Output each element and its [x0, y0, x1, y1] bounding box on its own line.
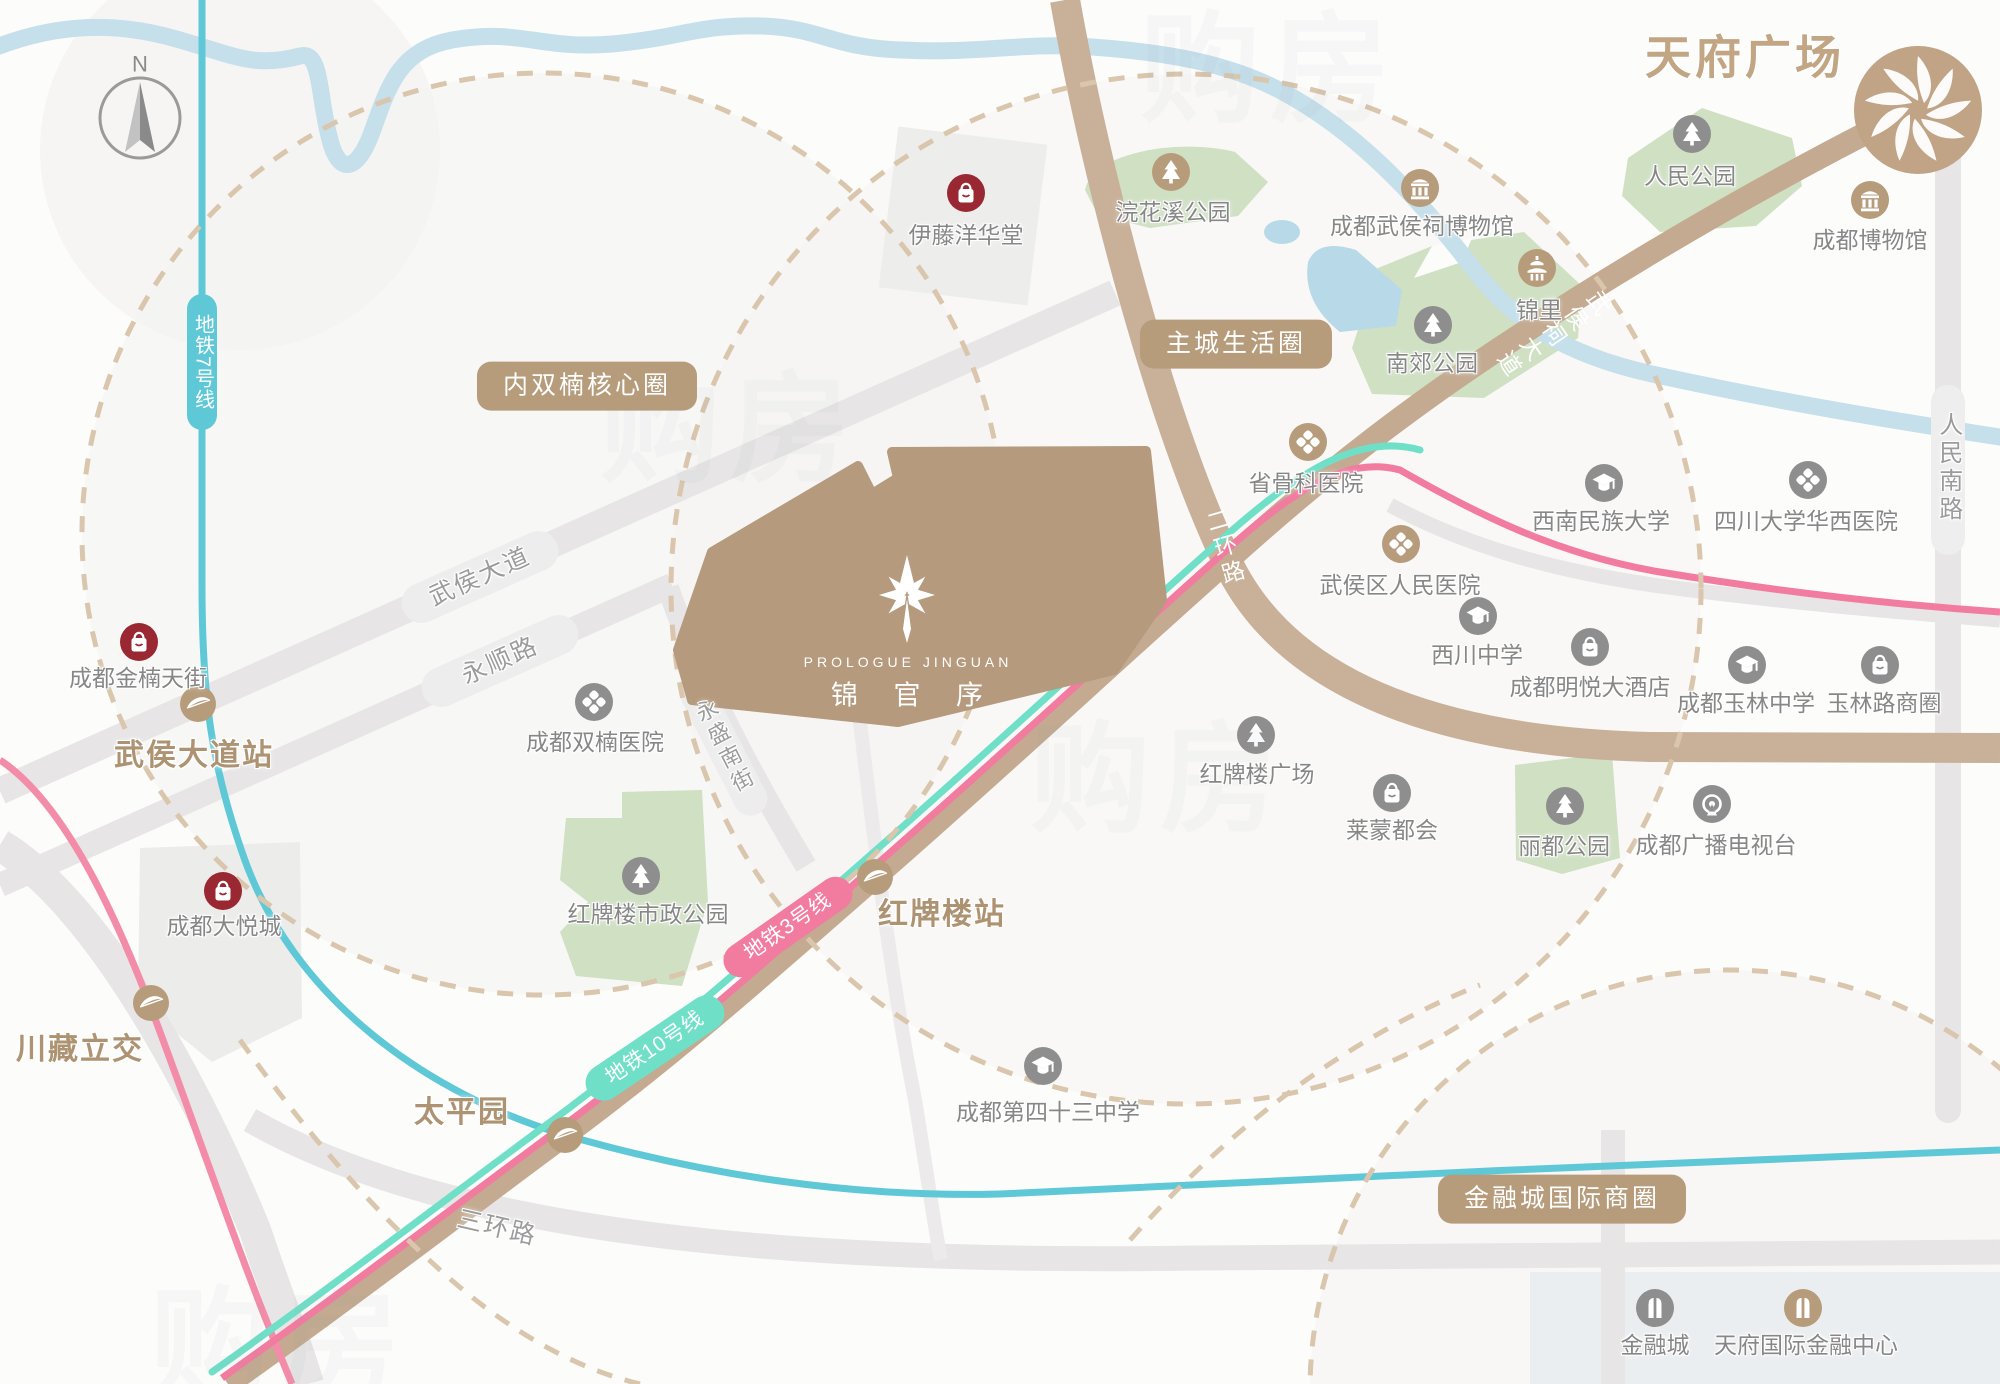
poi-label: 人民公园: [1644, 163, 1736, 189]
school-icon: [1585, 464, 1623, 502]
hospital-icon: [575, 683, 613, 721]
poi-label: 丽都公园: [1518, 833, 1610, 859]
tianfu-square-label: 天府广场: [1645, 32, 1845, 85]
poi-label: 成都武侯祠博物馆: [1330, 213, 1514, 239]
block-financial-city: [1530, 1272, 2000, 1384]
station-icon-hongpailou: [857, 859, 893, 895]
poi-label: 西川中学: [1431, 642, 1523, 668]
tianfu-square-icon: [1854, 46, 1982, 174]
museum-icon: [1401, 169, 1439, 207]
building-icon: [1636, 1289, 1674, 1327]
shopping-bag-icon: [947, 174, 985, 212]
pagoda-icon: [1518, 249, 1556, 287]
poi-label: 伊藤洋华堂: [909, 222, 1024, 248]
watermark: 购房: [1140, 1, 1400, 139]
poi-label: 成都博物馆: [1813, 227, 1928, 253]
poi-label: 西南民族大学: [1532, 508, 1670, 534]
shopping-bag-icon: [120, 623, 158, 661]
poi-label: 玉林路商圈: [1827, 690, 1942, 716]
station-label-chuanzang: 川藏立交: [16, 1033, 144, 1068]
road-label-renmin-south: 人民南路: [1934, 412, 1962, 524]
shopping-bag-icon: [204, 872, 242, 910]
hospital-icon: [1289, 423, 1327, 461]
building-icon: [1784, 1289, 1822, 1327]
badge-core-circle: 内双楠核心圈: [477, 362, 697, 411]
poi-label: 成都广播电视台: [1636, 832, 1797, 858]
project-name-en: PROLOGUE JINGUAN: [804, 654, 1013, 670]
park-tree-icon: [1414, 306, 1452, 344]
poi-label: 成都金楠天街: [69, 665, 207, 691]
pond: [1264, 220, 1300, 244]
poi-label: 省骨科医院: [1249, 470, 1364, 496]
poi-label: 武侯区人民医院: [1320, 572, 1481, 598]
poi-label: 莱蒙都会: [1346, 817, 1438, 843]
station-icon-taipingyuan: [547, 1117, 583, 1153]
station-label-taipingyuan: 太平园: [414, 1096, 510, 1131]
shopping-bag-icon: [1861, 646, 1899, 684]
poi-label: 锦里: [1516, 297, 1562, 323]
park-tree-icon: [1673, 115, 1711, 153]
poi-label: 成都玉林中学: [1677, 690, 1815, 716]
location-map: N 购房 购房 购房 购房 天府广场 武侯大道站 川藏立交 太平园 红牌楼站 内…: [0, 0, 2000, 1384]
school-icon: [1728, 646, 1766, 684]
station-label-wuhou-avenue: 武侯大道站: [114, 739, 274, 774]
poi-label: 浣花溪公园: [1116, 199, 1231, 225]
badge-main-city: 主城生活圈: [1140, 320, 1332, 369]
project-name-cn: 锦 官 序: [831, 680, 997, 711]
poi-label: 红牌楼市政公园: [568, 901, 729, 927]
park-tree-icon: [1152, 153, 1190, 191]
station-icon-chuanzang: [133, 985, 169, 1021]
hospital-icon: [1789, 461, 1827, 499]
hospital-icon: [1382, 525, 1420, 563]
broadcast-tower-icon: [1693, 785, 1731, 823]
school-icon: [1459, 597, 1497, 635]
station-label-hongpailou: 红牌楼站: [878, 898, 1006, 933]
poi-label: 成都第四十三中学: [956, 1099, 1140, 1125]
shopping-bag-icon: [1373, 774, 1411, 812]
poi-label: 成都双楠医院: [526, 729, 664, 755]
poi-label: 南郊公园: [1386, 350, 1478, 376]
station-icon-wuhou-avenue: [180, 686, 216, 722]
compass-north-label: N: [132, 51, 148, 76]
block-ito: [879, 126, 1048, 305]
school-icon: [1024, 1047, 1062, 1085]
poi-label: 天府国际金融中心: [1714, 1332, 1898, 1358]
poi-label: 红牌楼广场: [1200, 761, 1315, 787]
poi-label: 金融城: [1621, 1332, 1690, 1358]
metro-line7-label: 地铁7号线: [191, 314, 214, 410]
shopping-bag-icon: [1571, 628, 1609, 666]
watermark: 购房: [150, 1276, 410, 1384]
museum-icon: [1851, 181, 1889, 219]
poi-label: 四川大学华西医院: [1714, 508, 1898, 534]
poi-label: 成都大悦城: [167, 913, 282, 939]
park-tree-icon: [1546, 787, 1584, 825]
poi-label: 成都明悦大酒店: [1510, 674, 1671, 700]
park-tree-icon: [622, 857, 660, 895]
badge-financial-city: 金融城国际商圈: [1438, 1175, 1686, 1224]
